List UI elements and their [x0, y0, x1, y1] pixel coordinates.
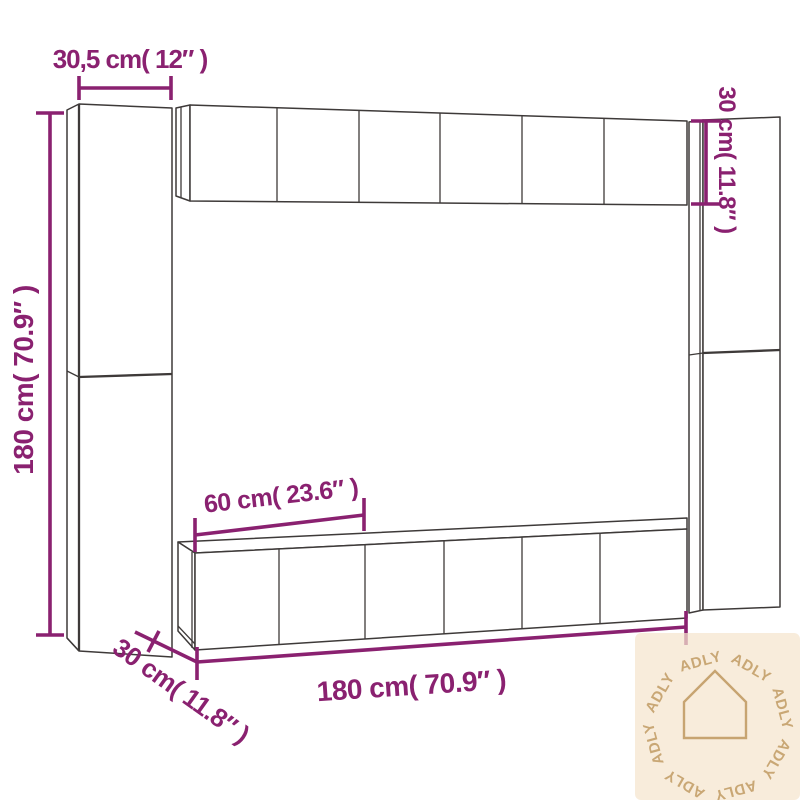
right-cabinet-side-panel [689, 120, 703, 613]
dimension-left-unit-width: 30,5 cm( 12″ ) [53, 44, 208, 100]
watermark: ADLY ADLY ADLY ADLY ADLY ADLY ADLY ADLY [626, 633, 800, 800]
left-cabinet-outline [67, 104, 172, 657]
dimension-label-left-unit-height: 180 cm( 70.9″ ) [8, 285, 39, 475]
top-cabinet-row [176, 105, 687, 205]
dimension-label-bottom-unit-width: 60 cm( 23.6″ ) [202, 473, 359, 518]
top-row-side-panel [176, 105, 190, 201]
diagram-canvas: 30,5 cm( 12″ ) 180 cm( 70.9″ ) 30 cm( 11… [0, 0, 800, 800]
dimension-label-left-unit-width: 30,5 cm( 12″ ) [53, 44, 208, 74]
top-row-front-face [190, 105, 687, 205]
dimension-label-unit-depth: 30 cm( 11.8″ ) [107, 632, 255, 749]
dimension-line [195, 515, 364, 535]
dimension-label-bottom-row-width: 180 cm( 70.9″ ) [316, 664, 507, 707]
bottom-cabinet-row [178, 518, 687, 650]
furniture-dimension-diagram: 30,5 cm( 12″ ) 180 cm( 70.9″ ) 30 cm( 11… [0, 0, 800, 800]
left-tall-cabinet [67, 104, 172, 657]
dimension-label-top-row-height: 30 cm( 11.8″ ) [713, 86, 740, 233]
dimension-unit-depth: 30 cm( 11.8″ ) [107, 631, 255, 749]
dimension-left-unit-height: 180 cm( 70.9″ ) [8, 113, 64, 635]
